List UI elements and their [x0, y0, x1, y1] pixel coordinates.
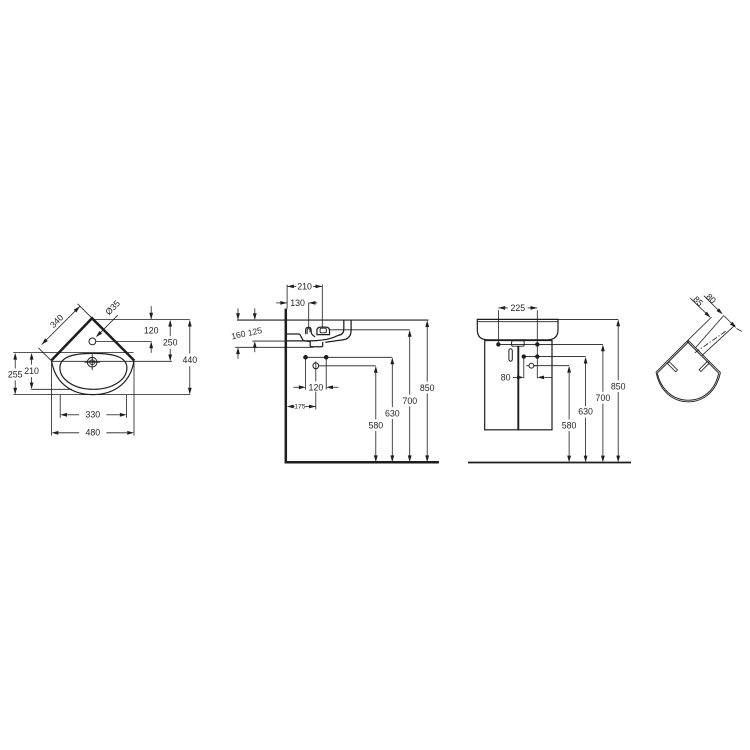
svg-text:700: 700	[402, 396, 417, 406]
svg-text:250: 250	[163, 338, 178, 348]
svg-text:580: 580	[368, 420, 383, 430]
svg-text:255: 255	[8, 369, 23, 379]
svg-text:850: 850	[611, 381, 626, 391]
svg-text:440: 440	[182, 355, 197, 365]
svg-text:330: 330	[85, 409, 100, 419]
svg-text:175: 175	[294, 404, 306, 411]
svg-text:120: 120	[144, 326, 159, 336]
svg-text:480: 480	[85, 427, 100, 437]
svg-text:630: 630	[385, 408, 400, 418]
svg-text:210: 210	[297, 281, 312, 291]
svg-text:700: 700	[596, 393, 611, 403]
svg-text:130: 130	[290, 298, 305, 308]
svg-text:630: 630	[578, 406, 593, 416]
svg-text:225: 225	[510, 303, 525, 313]
svg-text:850: 850	[420, 383, 435, 393]
svg-text:80: 80	[501, 372, 511, 382]
svg-text:120: 120	[309, 382, 324, 392]
svg-text:580: 580	[562, 420, 577, 430]
svg-text:210: 210	[24, 366, 39, 376]
